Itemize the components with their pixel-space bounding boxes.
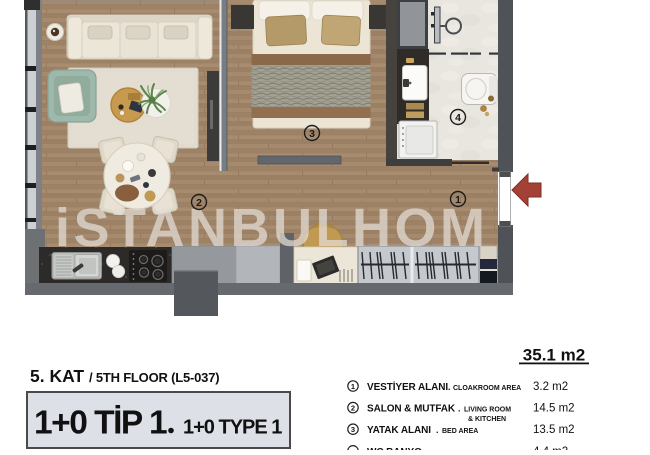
svg-text:4: 4 (455, 112, 461, 124)
svg-text:YATAK ALANI: YATAK ALANI (367, 425, 431, 436)
svg-text:LIVING ROOM: LIVING ROOM (464, 407, 511, 414)
svg-text:BED AREA: BED AREA (442, 428, 478, 435)
svg-text:35.1 m2: 35.1 m2 (523, 346, 585, 365)
svg-text:.: . (458, 404, 461, 414)
svg-text:14.5 m2: 14.5 m2 (533, 403, 575, 415)
svg-text:& KITCHEN: & KITCHEN (468, 416, 506, 423)
svg-text:1: 1 (351, 382, 355, 391)
svg-text:2: 2 (196, 197, 202, 209)
svg-text:SALON & MUTFAK: SALON & MUTFAK (367, 404, 456, 415)
svg-text:2: 2 (351, 403, 355, 412)
svg-text:3.2 m2: 3.2 m2 (533, 381, 568, 393)
svg-text:1+0 TİP 1: 1+0 TİP 1 (34, 405, 167, 442)
svg-text:1+0 TYPE 1: 1+0 TYPE 1 (183, 417, 282, 439)
svg-text:3: 3 (351, 425, 355, 434)
svg-text:.: . (448, 382, 451, 392)
svg-text:1: 1 (455, 194, 461, 206)
svg-text:CLOAKROOM AREA: CLOAKROOM AREA (453, 385, 521, 392)
svg-text:.: . (436, 425, 439, 435)
svg-text:13.5 m2: 13.5 m2 (533, 424, 575, 436)
svg-text:VESTİYER ALANI: VESTİYER ALANI (367, 380, 448, 393)
svg-text:3: 3 (309, 128, 315, 140)
svg-text:4.4 m2: 4.4 m2 (533, 446, 568, 450)
